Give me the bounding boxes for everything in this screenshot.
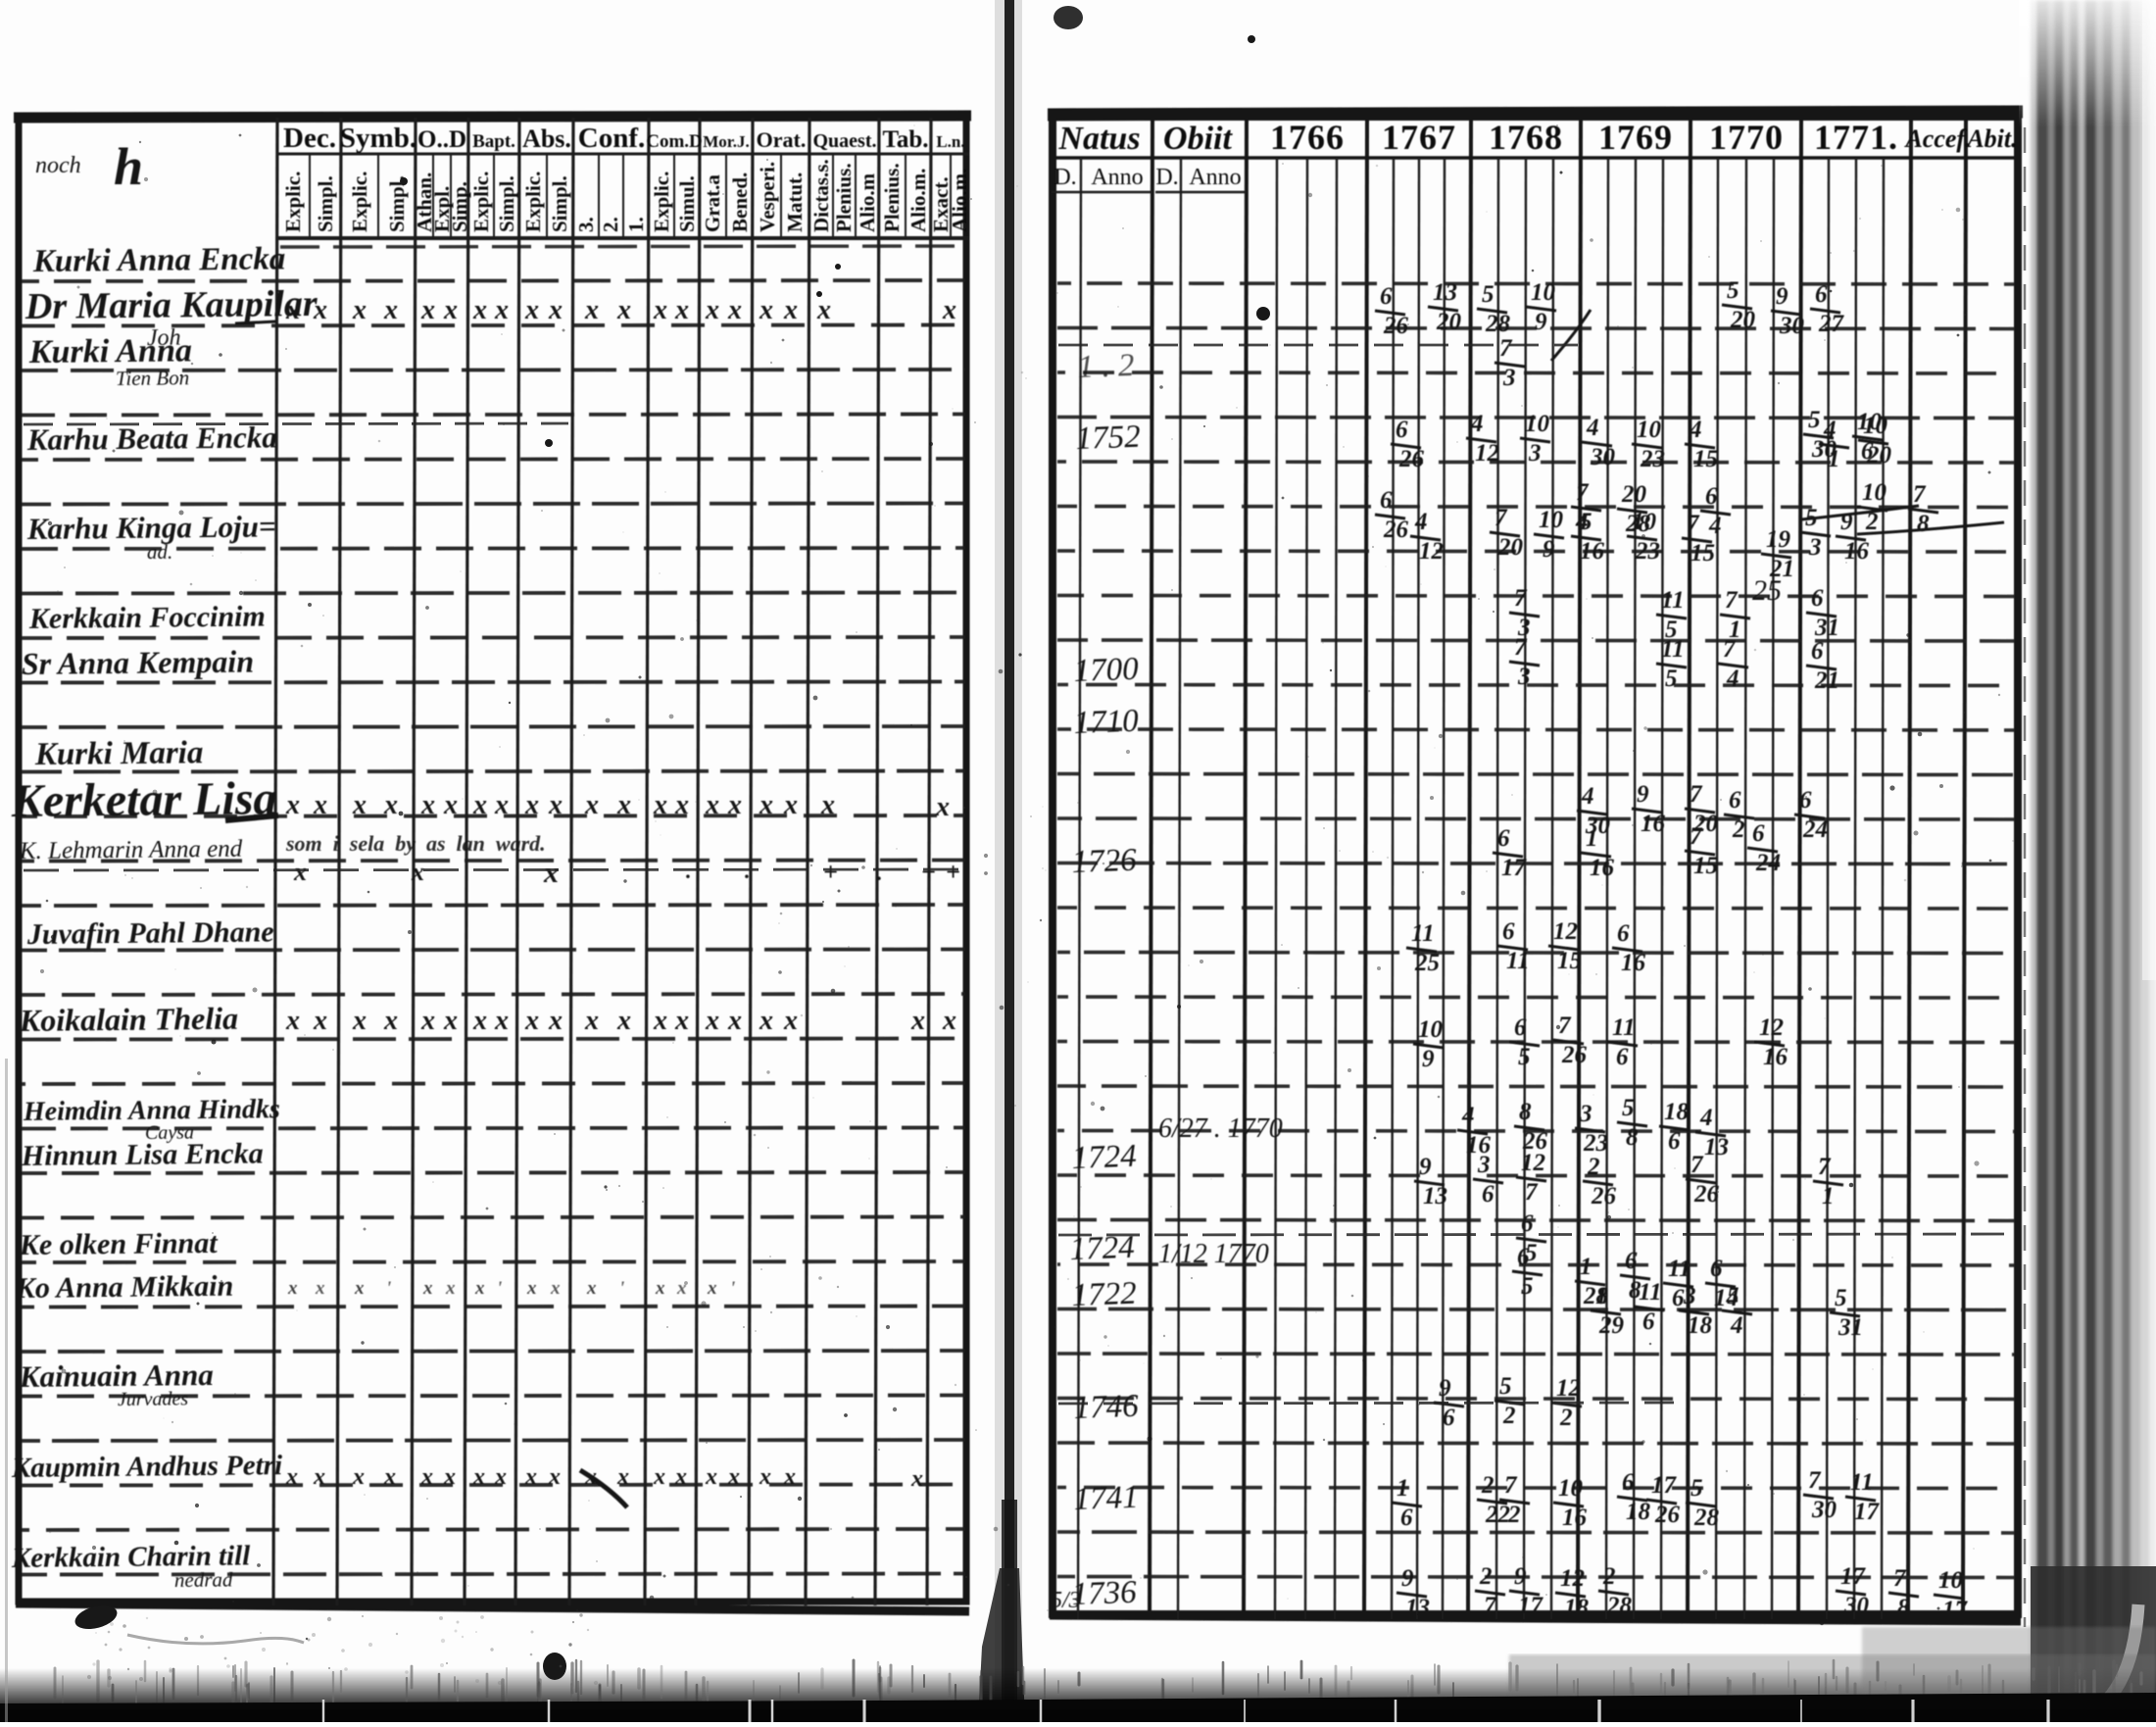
svg-text:17: 17 xyxy=(1501,855,1528,881)
svg-text:8: 8 xyxy=(1897,1595,1910,1621)
svg-text:1: 1 xyxy=(1580,1254,1592,1280)
svg-text:9: 9 xyxy=(1543,536,1555,563)
svg-text:Anno: Anno xyxy=(1091,165,1143,190)
svg-text:25: 25 xyxy=(1752,574,1782,607)
svg-text:7: 7 xyxy=(1558,1012,1572,1039)
svg-text:10: 10 xyxy=(1525,411,1550,437)
svg-text:Joh: Joh xyxy=(147,325,181,351)
svg-text:3: 3 xyxy=(1808,534,1822,561)
svg-text:4: 4 xyxy=(1699,1105,1713,1131)
svg-text:6: 6 xyxy=(1517,1244,1530,1270)
svg-text:3: 3 xyxy=(1683,1283,1696,1309)
svg-text:Orat.: Orat. xyxy=(757,127,807,152)
svg-text:Simpl.: Simpl. xyxy=(548,175,571,232)
svg-text:x: x xyxy=(287,1278,298,1299)
svg-text:x: x xyxy=(676,1278,687,1299)
svg-text:som i sela by as lan war: som i sela by as lan ward. xyxy=(285,831,546,856)
svg-text:5: 5 xyxy=(1482,281,1494,308)
svg-text:5: 5 xyxy=(1518,1044,1531,1070)
svg-text:x: x xyxy=(653,295,667,325)
svg-text:15: 15 xyxy=(1693,853,1718,879)
svg-text:x: x xyxy=(494,790,509,820)
svg-text:Obiit: Obiit xyxy=(1163,121,1233,157)
svg-text:x: x xyxy=(942,1006,956,1036)
svg-text:x: x xyxy=(383,1464,396,1490)
svg-text:O..D: O..D xyxy=(417,126,466,153)
svg-text:x: x xyxy=(313,1006,327,1036)
svg-text:4: 4 xyxy=(1823,417,1837,443)
svg-text:23: 23 xyxy=(1635,538,1660,565)
svg-text:31: 31 xyxy=(1814,615,1839,641)
svg-text:24: 24 xyxy=(1755,850,1781,876)
svg-text:5/3: 5/3 xyxy=(1051,1588,1081,1613)
svg-text:x: x xyxy=(727,1006,742,1036)
svg-text:x: x xyxy=(383,295,398,325)
svg-text:20: 20 xyxy=(1497,534,1524,561)
svg-text:30: 30 xyxy=(1590,444,1616,470)
svg-text:15: 15 xyxy=(1690,540,1715,567)
svg-text:x: x xyxy=(411,858,424,886)
svg-text:Jurvades: Jurvades xyxy=(118,1388,189,1410)
svg-text:7: 7 xyxy=(1494,505,1508,531)
svg-text:x: x xyxy=(543,857,559,889)
svg-text:3: 3 xyxy=(1579,1101,1592,1127)
svg-text:2: 2 xyxy=(1587,1154,1600,1180)
svg-text:7: 7 xyxy=(1504,1472,1518,1499)
svg-text:x: x xyxy=(443,790,458,820)
svg-text:7: 7 xyxy=(1725,587,1739,614)
svg-text:10: 10 xyxy=(1862,479,1887,506)
svg-text:Simp.: Simp. xyxy=(448,181,471,232)
svg-text:16: 16 xyxy=(1844,538,1870,565)
svg-text:Abit.: Abit. xyxy=(1965,124,2017,153)
svg-text:19: 19 xyxy=(1766,526,1791,553)
svg-text:8: 8 xyxy=(1519,1099,1532,1125)
svg-text:Explic.: Explic. xyxy=(469,172,493,232)
svg-text:': ' xyxy=(386,1278,391,1299)
svg-text:6: 6 xyxy=(1482,1181,1494,1208)
svg-text:2: 2 xyxy=(1502,1403,1516,1429)
svg-text:26: 26 xyxy=(1383,517,1409,543)
svg-text:x: x xyxy=(352,1464,365,1490)
svg-text:Ke olken Finnat: Ke olken Finnat xyxy=(19,1227,220,1261)
svg-text:x: x xyxy=(352,790,367,820)
svg-text:x: x xyxy=(494,1464,507,1490)
svg-text:12: 12 xyxy=(1419,538,1444,565)
svg-text:.: . xyxy=(877,861,883,885)
svg-text:21: 21 xyxy=(1814,667,1839,694)
svg-text:Kerkkain Foccinim: Kerkkain Foccinim xyxy=(28,600,266,635)
svg-text:9: 9 xyxy=(1422,1046,1435,1072)
svg-text:11: 11 xyxy=(1661,587,1685,614)
svg-text:x: x xyxy=(472,1006,487,1036)
svg-text:x: x xyxy=(422,1278,433,1299)
svg-text:10: 10 xyxy=(1418,1016,1444,1043)
svg-text:18: 18 xyxy=(1564,1595,1590,1621)
svg-text:1736: 1736 xyxy=(1071,1575,1138,1612)
svg-text:2: 2 xyxy=(1481,1472,1494,1499)
svg-text:1752: 1752 xyxy=(1075,419,1141,457)
svg-text:1: 1 xyxy=(1828,446,1840,472)
svg-text:20: 20 xyxy=(1621,481,1647,508)
svg-text:K. Lehmarin Anna end: K. Lehmarin Anna end xyxy=(19,836,243,864)
svg-text:26: 26 xyxy=(1693,1181,1720,1208)
svg-text:x: x xyxy=(783,295,798,325)
svg-text:13: 13 xyxy=(1433,279,1457,306)
svg-text:x: x xyxy=(494,1006,509,1036)
svg-text:Conf.: Conf. xyxy=(578,123,645,154)
svg-text:26: 26 xyxy=(1591,1183,1617,1209)
svg-text:x: x xyxy=(653,1464,665,1490)
svg-text:Simpl.: Simpl. xyxy=(495,175,518,232)
svg-text:Simpl.: Simpl. xyxy=(314,175,337,232)
svg-text:1 . 2: 1 . 2 xyxy=(1077,348,1135,385)
svg-text:Alio.m: Alio.m xyxy=(856,173,879,232)
svg-text:Symb.: Symb. xyxy=(340,123,416,154)
svg-text:Explic.: Explic. xyxy=(348,172,371,232)
svg-text:7: 7 xyxy=(1808,1467,1822,1494)
svg-text:x: x xyxy=(653,790,667,820)
svg-text:x: x xyxy=(727,295,742,325)
svg-text:12: 12 xyxy=(1521,1150,1545,1176)
svg-text:11: 11 xyxy=(1850,1469,1874,1496)
svg-text:x: x xyxy=(445,1278,456,1299)
svg-text:x: x xyxy=(472,790,487,820)
svg-text:1: 1 xyxy=(1586,825,1598,852)
svg-text:23: 23 xyxy=(1583,1130,1608,1157)
svg-text:10: 10 xyxy=(1632,509,1657,535)
svg-text:x: x xyxy=(584,1006,599,1036)
svg-text:4: 4 xyxy=(1708,513,1722,539)
svg-text:6: 6 xyxy=(1400,1505,1413,1531)
svg-text:Bapt.: Bapt. xyxy=(472,131,515,152)
svg-text:20: 20 xyxy=(1866,442,1892,469)
svg-text:x: x xyxy=(759,1464,771,1490)
svg-text:1/12 1770: 1/12 1770 xyxy=(1158,1239,1269,1269)
svg-text:1768: 1768 xyxy=(1489,118,1563,157)
svg-text:Koikalain Thelia: Koikalain Thelia xyxy=(19,1001,239,1038)
svg-text:Alio.m.: Alio.m. xyxy=(906,169,930,232)
svg-text:Explic.: Explic. xyxy=(521,172,545,232)
svg-text:6: 6 xyxy=(1622,1469,1635,1496)
svg-text:7: 7 xyxy=(1525,1179,1539,1206)
svg-text:x: x xyxy=(524,1464,537,1490)
svg-text:2: 2 xyxy=(1732,816,1745,843)
svg-text:x: x xyxy=(783,1006,798,1036)
svg-text:': ' xyxy=(497,1278,502,1299)
svg-text:x: x xyxy=(727,790,742,820)
svg-text:10: 10 xyxy=(1637,417,1662,443)
svg-text:20: 20 xyxy=(1436,309,1462,335)
svg-text:1741: 1741 xyxy=(1073,1480,1139,1517)
svg-text:23: 23 xyxy=(1640,446,1665,472)
svg-text:29: 29 xyxy=(1598,1312,1625,1339)
svg-text:5: 5 xyxy=(1622,1095,1635,1121)
svg-text:x: x xyxy=(420,1006,435,1036)
svg-text:6: 6 xyxy=(1396,417,1408,443)
svg-text:6: 6 xyxy=(1502,918,1515,945)
svg-text:x: x xyxy=(548,1464,561,1490)
svg-text:Kurki Maria: Kurki Maria xyxy=(34,735,204,772)
svg-text:15: 15 xyxy=(1693,446,1718,472)
svg-text:x: x xyxy=(420,790,435,820)
svg-text:x: x xyxy=(443,1464,456,1490)
svg-text:x: x xyxy=(759,295,773,325)
svg-text:x: x xyxy=(443,295,458,325)
svg-text:9: 9 xyxy=(1419,1154,1432,1180)
svg-text:nedrad: nedrad xyxy=(174,1567,233,1592)
svg-text:6: 6 xyxy=(1642,1308,1655,1335)
svg-text:11: 11 xyxy=(1411,920,1435,947)
svg-text:4: 4 xyxy=(1586,415,1599,441)
svg-text:11: 11 xyxy=(1612,1014,1636,1041)
svg-text:6/27 . 1770: 6/27 . 1770 xyxy=(1158,1113,1283,1144)
svg-text:1: 1 xyxy=(1822,1183,1835,1209)
svg-text:16: 16 xyxy=(1763,1044,1788,1070)
svg-text:Explic.: Explic. xyxy=(281,172,305,232)
svg-text:10: 10 xyxy=(1938,1567,1964,1594)
svg-text:6: 6 xyxy=(1625,1248,1638,1274)
svg-text:x: x xyxy=(524,790,539,820)
svg-text:22: 22 xyxy=(1485,1502,1510,1528)
svg-text:x: x xyxy=(674,1006,689,1036)
svg-text:x: x xyxy=(472,295,487,325)
svg-text:x: x xyxy=(285,295,300,325)
svg-text:Dec.: Dec. xyxy=(283,123,336,154)
svg-text:6: 6 xyxy=(1380,283,1393,310)
svg-text:x: x xyxy=(293,858,307,886)
svg-text:noch: noch xyxy=(35,153,81,178)
svg-text:7: 7 xyxy=(1484,1593,1497,1619)
svg-text:12: 12 xyxy=(1759,1014,1784,1041)
svg-text:1710: 1710 xyxy=(1073,704,1140,741)
svg-text:x: x xyxy=(820,790,835,820)
svg-text:4: 4 xyxy=(1581,783,1594,810)
svg-text:Vesperi.: Vesperi. xyxy=(756,162,779,232)
svg-text:26: 26 xyxy=(1398,446,1425,472)
svg-text:24: 24 xyxy=(1802,816,1828,843)
svg-text:5: 5 xyxy=(1727,277,1739,304)
svg-text:x: x xyxy=(352,1006,367,1036)
svg-text:Matut.: Matut. xyxy=(783,173,807,232)
svg-text:3: 3 xyxy=(1517,664,1531,690)
svg-text:x: x xyxy=(707,1278,717,1299)
svg-text:10: 10 xyxy=(1558,1475,1584,1502)
svg-text:x: x xyxy=(674,1464,687,1490)
svg-text:1769: 1769 xyxy=(1598,118,1673,157)
svg-text:9: 9 xyxy=(1637,781,1649,808)
svg-text:x: x xyxy=(783,1464,796,1490)
svg-text:31: 31 xyxy=(1837,1314,1863,1341)
svg-text:2: 2 xyxy=(1602,1563,1616,1590)
svg-text:x: x xyxy=(285,790,300,820)
svg-text:5: 5 xyxy=(1521,1273,1534,1300)
svg-text:Hinnun Lisa Encka: Hinnun Lisa Encka xyxy=(21,1137,264,1172)
svg-text:Ko Anna Mikkain: Ko Anna Mikkain xyxy=(15,1270,234,1305)
svg-text:x: x xyxy=(472,1464,485,1490)
svg-text:x: x xyxy=(526,1278,537,1299)
svg-text:6: 6 xyxy=(1443,1405,1455,1431)
svg-text:x: x xyxy=(910,1006,925,1036)
svg-text:x: x xyxy=(816,295,831,325)
svg-text:12: 12 xyxy=(1553,918,1578,945)
svg-text:18: 18 xyxy=(1688,1312,1713,1339)
svg-text:x: x xyxy=(705,1006,719,1036)
svg-text:28: 28 xyxy=(1485,311,1511,337)
svg-text:4: 4 xyxy=(1730,1312,1743,1339)
svg-text:25: 25 xyxy=(1414,950,1440,976)
svg-text:7: 7 xyxy=(1893,1565,1907,1592)
svg-text:Plenius.: Plenius. xyxy=(880,163,904,232)
svg-text:30: 30 xyxy=(1811,1497,1837,1523)
svg-text:17: 17 xyxy=(1651,1472,1678,1499)
svg-text:7: 7 xyxy=(1723,636,1737,663)
svg-text:7: 7 xyxy=(1499,335,1513,362)
svg-text:1746: 1746 xyxy=(1073,1389,1140,1426)
svg-text:1: 1 xyxy=(1396,1475,1409,1502)
svg-text:Simul.: Simul. xyxy=(675,175,699,232)
svg-text:7: 7 xyxy=(1690,1152,1704,1178)
svg-text:26: 26 xyxy=(1383,313,1409,339)
svg-text:11: 11 xyxy=(1661,636,1685,663)
svg-text:6: 6 xyxy=(1729,787,1741,814)
svg-text:6: 6 xyxy=(1811,585,1824,612)
svg-text:x: x xyxy=(942,295,956,325)
svg-text:1724: 1724 xyxy=(1071,1139,1137,1176)
svg-text:9: 9 xyxy=(1439,1375,1451,1402)
svg-text:6: 6 xyxy=(1799,787,1812,814)
svg-text:Abs.: Abs. xyxy=(522,124,571,153)
svg-text:28: 28 xyxy=(1693,1505,1720,1531)
svg-text:x: x xyxy=(420,1464,433,1490)
svg-text:4: 4 xyxy=(1575,509,1589,535)
svg-text:15: 15 xyxy=(1557,948,1582,974)
svg-text:x: x xyxy=(674,295,689,325)
svg-text:x: x xyxy=(584,790,599,820)
svg-text:x: x xyxy=(584,295,599,325)
svg-text:x: x xyxy=(474,1278,485,1299)
svg-text:x: x xyxy=(727,1464,740,1490)
svg-text:Explic.: Explic. xyxy=(650,172,673,232)
svg-text:7: 7 xyxy=(1514,634,1528,661)
svg-text:x: x xyxy=(524,1006,539,1036)
svg-text:+: + xyxy=(921,858,936,886)
svg-text:5: 5 xyxy=(1499,1373,1512,1400)
svg-text:Accef.: Accef. xyxy=(1903,124,1971,153)
svg-text:3: 3 xyxy=(1502,365,1516,391)
svg-text:11: 11 xyxy=(1668,1256,1691,1282)
svg-text:2: 2 xyxy=(1479,1563,1493,1590)
svg-text:x: x xyxy=(705,790,719,820)
svg-text:x: x xyxy=(616,790,631,820)
svg-text:20: 20 xyxy=(1730,307,1756,333)
svg-text:x: x xyxy=(910,1466,923,1492)
svg-text:11: 11 xyxy=(1506,948,1530,974)
svg-text:x: x xyxy=(616,1006,631,1036)
svg-text:7: 7 xyxy=(1818,1154,1832,1180)
svg-text:5: 5 xyxy=(1835,1285,1847,1311)
svg-text:26: 26 xyxy=(1561,1042,1588,1068)
svg-text:x: x xyxy=(285,1464,298,1490)
svg-text:D.: D. xyxy=(1053,165,1076,190)
svg-text:1700: 1700 xyxy=(1073,652,1140,689)
svg-text:x: x xyxy=(586,1278,597,1299)
svg-text:3.: 3. xyxy=(574,217,598,232)
svg-text:6: 6 xyxy=(1617,920,1630,947)
svg-text:11: 11 xyxy=(1639,1279,1662,1306)
svg-text:x: x xyxy=(759,1006,773,1036)
svg-text:13: 13 xyxy=(1405,1595,1430,1621)
svg-text:30: 30 xyxy=(1779,313,1805,339)
svg-text:6: 6 xyxy=(1710,1256,1723,1282)
svg-text:6: 6 xyxy=(1811,638,1824,665)
svg-text:h: h xyxy=(114,137,143,196)
svg-text:17: 17 xyxy=(1942,1597,1969,1623)
svg-text:3: 3 xyxy=(1477,1152,1491,1178)
svg-text:8: 8 xyxy=(1626,1124,1639,1151)
svg-text:x: x xyxy=(655,1278,665,1299)
svg-text:1726: 1726 xyxy=(1071,843,1138,880)
svg-text:Grat.a: Grat.a xyxy=(701,174,724,232)
svg-text:10: 10 xyxy=(1539,507,1564,533)
svg-text:x: x xyxy=(674,790,689,820)
svg-text:6: 6 xyxy=(1815,281,1828,308)
svg-text:27: 27 xyxy=(1818,311,1845,337)
svg-text:': ' xyxy=(730,1278,735,1299)
svg-text:1767: 1767 xyxy=(1382,118,1456,157)
svg-text:13: 13 xyxy=(1423,1183,1447,1209)
svg-text:x: x xyxy=(383,790,398,820)
svg-text:x: x xyxy=(494,295,509,325)
svg-text:Plenius.: Plenius. xyxy=(832,163,856,232)
svg-text:Alio.m.: Alio.m. xyxy=(948,169,971,232)
svg-text:x: x xyxy=(548,1006,563,1036)
svg-text:18: 18 xyxy=(1626,1499,1651,1525)
svg-text:x: x xyxy=(705,295,719,325)
svg-text:4: 4 xyxy=(1461,1103,1475,1129)
svg-text:6: 6 xyxy=(1616,1044,1629,1070)
svg-text:x: x xyxy=(352,295,367,325)
svg-text:x: x xyxy=(550,1278,561,1299)
svg-text:3: 3 xyxy=(1528,440,1542,467)
svg-text:7: 7 xyxy=(1690,781,1703,808)
svg-text:6: 6 xyxy=(1752,820,1765,847)
svg-text:16: 16 xyxy=(1641,811,1666,837)
svg-text:17: 17 xyxy=(1518,1593,1544,1619)
svg-text:9: 9 xyxy=(1514,1563,1527,1590)
svg-text:+: + xyxy=(946,858,960,886)
svg-text:+: + xyxy=(823,858,838,886)
svg-text:2: 2 xyxy=(1559,1405,1573,1431)
svg-text:Sr Anna Kempain: Sr Anna Kempain xyxy=(22,644,254,681)
svg-text:10: 10 xyxy=(1531,279,1556,306)
svg-text:6: 6 xyxy=(1521,1210,1534,1237)
svg-text:2: 2 xyxy=(1507,1502,1521,1528)
svg-text:L.n.: L.n. xyxy=(936,132,964,151)
svg-text:Tab.: Tab. xyxy=(882,126,928,153)
svg-text:Tien Bon: Tien Bon xyxy=(116,366,190,390)
svg-text:13: 13 xyxy=(1704,1134,1729,1160)
svg-text:18: 18 xyxy=(1664,1099,1690,1125)
svg-text:8: 8 xyxy=(1917,511,1930,537)
svg-text:4: 4 xyxy=(1689,417,1702,443)
svg-text:7: 7 xyxy=(1690,823,1703,850)
svg-text:1771.: 1771. xyxy=(1814,118,1898,157)
svg-text:7: 7 xyxy=(1576,479,1590,506)
svg-text:ad.: ad. xyxy=(147,540,172,564)
svg-text:Anno: Anno xyxy=(1189,165,1241,190)
svg-text:x: x xyxy=(548,295,563,325)
